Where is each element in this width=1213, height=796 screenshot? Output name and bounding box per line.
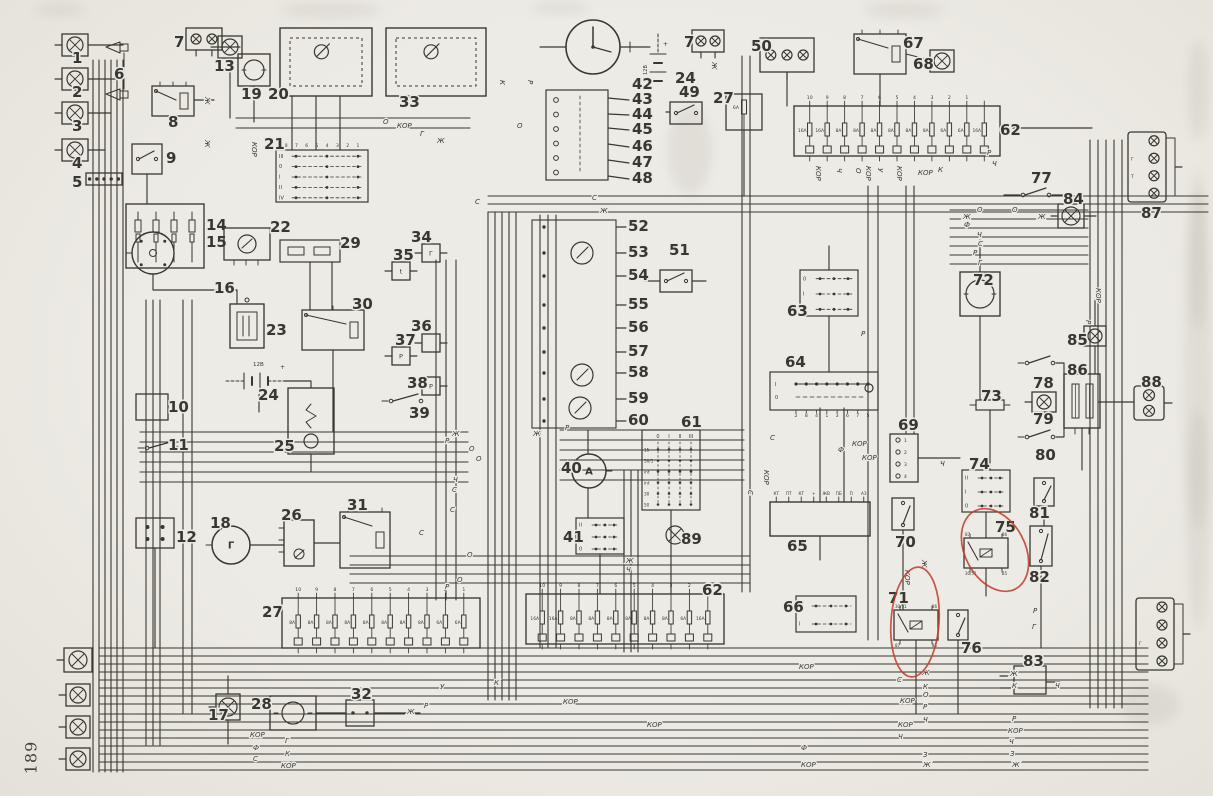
terminal-dot	[542, 303, 545, 306]
wire-segment	[898, 614, 908, 632]
component-number-3: 3	[72, 117, 82, 135]
wire-polyline	[106, 42, 120, 53]
component-outline	[288, 388, 334, 454]
dot	[690, 503, 693, 506]
fuse-pin: 7	[861, 95, 864, 101]
switch-position: IV	[279, 195, 284, 201]
component-number-85: 85	[1067, 331, 1088, 349]
dot	[604, 524, 607, 527]
wire-segment	[1025, 188, 1046, 195]
component-number-5: 5	[72, 173, 82, 191]
wire-segment	[242, 239, 252, 248]
component-number-52: 52	[628, 217, 649, 235]
dot	[657, 492, 660, 495]
wire-color-label: Ф	[838, 446, 844, 454]
fuse-pin: 9	[559, 583, 562, 589]
wire-segment	[577, 247, 588, 258]
component-number-88: 88	[1141, 373, 1162, 391]
dot	[668, 492, 671, 495]
terminal-dot	[542, 419, 545, 422]
scan-smudge	[1184, 170, 1212, 630]
wire-color-label: С	[897, 676, 902, 684]
component-outline	[370, 615, 374, 628]
fuse-rating: 8А	[363, 620, 369, 626]
fuse-rating: 6А	[436, 620, 442, 626]
fuse-pin: 10	[295, 587, 301, 593]
scan-smudge	[280, 2, 380, 18]
component-outline	[910, 146, 918, 153]
component-number-78: 78	[1033, 374, 1054, 392]
dot	[163, 263, 166, 266]
wire-color-label: Ч	[835, 168, 843, 173]
component-number-9: 9	[166, 149, 176, 167]
pin	[95, 177, 98, 180]
component-number-30: 30	[352, 295, 373, 313]
component-number-13: 13	[214, 57, 235, 75]
terminal-name: int	[644, 469, 650, 474]
scan-smudge	[530, 2, 590, 14]
component-outline	[532, 220, 616, 428]
wire-color-label: Ж	[625, 557, 634, 565]
component-outline	[860, 123, 864, 136]
dot	[613, 524, 616, 527]
wire-segment	[903, 506, 910, 524]
component-outline	[546, 90, 608, 180]
dot	[295, 165, 298, 168]
wire-color-label: С	[419, 529, 424, 537]
terminal-number: 4	[815, 413, 818, 419]
component-outline	[650, 611, 654, 624]
terminal-number: 6	[846, 413, 849, 419]
wire-segment	[306, 315, 346, 324]
wire-color-label: КОР	[900, 697, 915, 705]
dot	[657, 448, 660, 451]
component-circle	[901, 501, 904, 504]
wire-color-label: Ж	[203, 139, 211, 148]
wire-color-label: Р	[1033, 607, 1038, 615]
component-circle	[1025, 361, 1029, 365]
wire-color-label: КОР	[762, 470, 770, 485]
component-outline	[351, 615, 355, 628]
component-number-57: 57	[628, 342, 649, 360]
fuse-pin: 3	[426, 587, 429, 593]
wire-polyline	[608, 98, 629, 100]
wire-color-label: Ж	[203, 96, 211, 105]
component-circle	[154, 157, 157, 160]
diagram-text: +	[663, 41, 668, 48]
component-number-32: 32	[351, 685, 372, 703]
component-outline	[842, 123, 846, 136]
diagram-text: Г	[429, 250, 433, 258]
wire-color-label: Ч	[1055, 682, 1060, 690]
wire-color-label: Ч	[977, 231, 982, 239]
component-outline	[1034, 478, 1054, 506]
dot	[833, 308, 836, 311]
wire-color-label: Ж	[1011, 761, 1020, 769]
fuse-pin: 7	[596, 583, 599, 589]
fuse-rating: 8А	[888, 128, 894, 134]
component-outline	[280, 240, 340, 262]
wire-segment	[980, 549, 992, 557]
component-outline	[963, 146, 971, 153]
wire-color-label: С	[450, 506, 455, 514]
component-outline	[982, 123, 986, 136]
switch-position: I	[799, 622, 800, 628]
component-outline	[948, 610, 968, 640]
component-outline	[858, 146, 866, 153]
fuse-rating: 8А	[923, 128, 929, 134]
dot	[833, 293, 836, 296]
terminal-number: 4	[326, 143, 329, 149]
wire-color-label: Ч	[923, 716, 928, 724]
wire-color-label: О	[517, 122, 523, 130]
wire-color-label: КОР	[647, 721, 662, 729]
dot	[847, 293, 850, 296]
component-outline	[806, 146, 814, 153]
fuse-pin: 1	[965, 95, 968, 101]
wire-color-label: КОР	[397, 122, 412, 130]
component-circle	[1051, 435, 1055, 439]
component-outline	[667, 634, 675, 641]
wire-color-label: Р	[445, 437, 450, 445]
wire-color-label: У	[876, 168, 884, 173]
diagram-text: 2	[904, 450, 907, 456]
wire-color-label: Р	[526, 80, 534, 85]
dot	[690, 481, 693, 484]
dot	[357, 196, 360, 199]
terminal-name: 50/1	[644, 458, 654, 463]
component-number-25: 25	[274, 437, 295, 455]
component-number-48: 48	[632, 169, 653, 187]
diagram-text: Р	[399, 353, 403, 361]
terminal-number: 7	[856, 413, 859, 419]
component-number-89: 89	[681, 530, 702, 548]
relay-terminal: 86	[932, 604, 938, 609]
switch-position: III	[689, 434, 693, 440]
component-outline	[808, 123, 812, 136]
wire-color-label: К	[498, 80, 506, 86]
wire-color-label: Ж	[962, 213, 971, 221]
fuse-pin: 9	[826, 95, 829, 101]
fuse-pin: 3	[670, 583, 673, 589]
fuse-rating: 8А	[381, 620, 387, 626]
component-circle	[150, 250, 157, 257]
switch-position: I	[965, 490, 966, 496]
component-outline	[649, 634, 657, 641]
component-outline	[892, 46, 900, 62]
dot	[690, 448, 693, 451]
dot	[295, 176, 298, 179]
wire-color-label: Ж	[406, 708, 415, 716]
dot	[357, 155, 360, 158]
fuse-pin: 4	[913, 95, 916, 101]
dot	[830, 623, 833, 626]
wire-color-label: Р	[1084, 320, 1092, 325]
dot	[815, 605, 818, 608]
scan-smudge	[668, 105, 712, 195]
diagram-text: Р	[429, 383, 433, 391]
wire-color-label: К	[1012, 682, 1018, 690]
scan-smudge	[1188, 40, 1208, 140]
component-outline	[135, 220, 141, 232]
component-outline	[947, 123, 951, 136]
component-number-65: 65	[787, 537, 808, 555]
component-outline	[965, 123, 969, 136]
component-circle	[956, 613, 959, 616]
component-circle	[1025, 435, 1029, 439]
fuse-pin: 3	[930, 95, 933, 101]
wire-color-label: С	[452, 486, 457, 494]
diagram-text: +	[812, 491, 816, 496]
dot	[981, 505, 984, 508]
terminal-dot	[542, 397, 545, 400]
component-outline	[892, 498, 914, 530]
component-number-79: 79	[1033, 410, 1054, 428]
pin	[554, 156, 559, 161]
fuse-rating: 6А	[958, 128, 964, 134]
dot	[668, 503, 671, 506]
diagram-text: КТ	[773, 491, 779, 496]
wire-color-label: К	[923, 683, 929, 691]
component-outline	[558, 611, 562, 624]
dot	[613, 536, 616, 539]
wire-color-label: КОР	[898, 721, 913, 729]
component-outline	[557, 634, 565, 641]
wire-color-label: КОР	[563, 698, 578, 706]
component-number-75: 75	[995, 518, 1016, 536]
wire-color-label: Ф	[801, 744, 807, 752]
wire-color-label: К	[938, 166, 944, 174]
scan-smudge	[35, 4, 85, 16]
dot	[668, 448, 671, 451]
component-number-6: 6	[114, 65, 124, 83]
wire-color-label: Р	[861, 330, 866, 338]
dot	[990, 491, 993, 494]
wire-color-label: У	[440, 683, 445, 691]
terminal-number: 5	[867, 413, 870, 419]
component-outline	[276, 150, 368, 202]
component-number-4: 4	[72, 154, 82, 172]
wire-segment	[858, 39, 888, 48]
dot	[833, 277, 836, 280]
wire-polyline	[284, 381, 311, 388]
wire-color-label: С	[978, 240, 983, 248]
switch-position: II	[679, 434, 682, 440]
wire-color-label: КОР	[864, 166, 872, 181]
fuse-pin: 9	[315, 587, 318, 593]
terminal-dot	[542, 371, 545, 374]
component-number-51: 51	[669, 241, 690, 259]
pin	[896, 450, 900, 454]
wire-polyline	[1166, 138, 1175, 196]
component-number-39: 39	[409, 404, 430, 422]
component-outline	[685, 634, 693, 641]
relay-terminal: 87	[895, 643, 901, 648]
pin	[110, 177, 113, 180]
fuse-pin: 5	[389, 587, 392, 593]
fuse-rating: 8А	[418, 620, 424, 626]
component-outline	[893, 146, 901, 153]
fuse-rating: 6А	[940, 128, 946, 134]
terminal-name: 30	[644, 491, 650, 496]
component-outline	[823, 146, 831, 153]
wire-color-label: С	[592, 194, 597, 202]
wire-color-label: Ф	[253, 744, 259, 752]
diagram-text: АЗ	[861, 491, 867, 496]
component-outline	[687, 611, 691, 624]
wire-color-label: О	[854, 168, 862, 174]
component-number-87: 87	[1141, 204, 1162, 222]
component-outline	[1128, 132, 1166, 202]
terminal-number: 2	[795, 413, 798, 419]
diagram-text: Г	[228, 541, 235, 552]
fuse-pin: 10	[807, 95, 813, 101]
wire-color-label: Г	[978, 259, 983, 267]
component-number-33: 33	[399, 93, 420, 111]
dot	[830, 605, 833, 608]
component-number-66: 66	[783, 598, 804, 616]
pin	[554, 112, 559, 117]
wire-polyline	[1174, 604, 1183, 664]
dot	[326, 176, 329, 179]
component-outline	[422, 334, 440, 352]
switch-position: I	[775, 382, 776, 388]
wire-color-label: КОР	[862, 454, 877, 462]
pin	[88, 177, 91, 180]
component-number-84: 84	[1063, 190, 1084, 208]
component-number-38: 38	[407, 374, 428, 392]
component-outline	[350, 322, 358, 338]
component-outline	[706, 611, 710, 624]
relay-terminal: 85	[1002, 571, 1008, 576]
wire-color-label: О	[923, 691, 929, 699]
wire-color-label: С	[746, 490, 754, 495]
dot	[295, 155, 298, 158]
pin	[102, 177, 105, 180]
component-outline	[841, 146, 849, 153]
component-number-7: 7	[174, 33, 184, 51]
diagram-text: П	[850, 491, 853, 496]
component-outline	[180, 93, 188, 109]
wire-color-label: З	[1010, 750, 1015, 758]
diagram-text: Г	[1131, 156, 1134, 162]
component-outline	[423, 638, 431, 645]
diagram-text: 1	[904, 438, 907, 444]
component-circle	[684, 279, 687, 282]
fuse-pin: 5	[633, 583, 636, 589]
component-outline	[349, 638, 357, 645]
component-outline	[405, 638, 413, 645]
dot	[657, 459, 660, 462]
dot	[357, 165, 360, 168]
fuse-pin: 6	[370, 587, 373, 593]
component-number-31: 31	[347, 496, 368, 514]
component-outline	[153, 220, 159, 232]
switch-position: 0	[803, 276, 806, 282]
component-number-27: 27	[713, 89, 734, 107]
component-number-34: 34	[411, 228, 432, 246]
component-outline	[770, 502, 870, 536]
component-outline	[313, 638, 321, 645]
dot	[668, 459, 671, 462]
battery-voltage: 12В	[643, 65, 649, 75]
dot	[326, 165, 329, 168]
dot	[999, 505, 1002, 508]
dot	[604, 548, 607, 551]
component-circle	[304, 434, 318, 448]
switch-position: II	[279, 185, 282, 191]
wire-color-label: Ж	[599, 207, 608, 215]
fuse-pin: 8	[843, 95, 846, 101]
component-outline	[386, 638, 394, 645]
wire-color-label: КОР	[1094, 288, 1102, 303]
component-number-37: 37	[395, 331, 416, 349]
wire-color-label: Ч	[898, 733, 903, 741]
component-outline	[540, 611, 544, 624]
wire-segment	[393, 394, 418, 401]
dot	[819, 293, 822, 296]
component-outline	[462, 615, 466, 628]
component-number-63: 63	[787, 302, 808, 320]
wire-color-label: О	[469, 445, 475, 453]
terminal-number: 1	[356, 143, 359, 149]
component-outline	[1064, 374, 1100, 428]
component-number-83: 83	[1023, 652, 1044, 670]
terminal-dot	[542, 350, 545, 353]
wire-color-label: Ж	[922, 761, 931, 769]
component-number-40: 40	[561, 459, 582, 477]
diagram-text: Т	[1130, 174, 1134, 180]
component-number-58: 58	[628, 363, 649, 381]
wire-color-label: Ж	[710, 61, 718, 70]
wire-segment	[139, 151, 154, 159]
wire-color-label: КОР	[1008, 727, 1023, 735]
wire-color-label: Ч	[940, 460, 945, 468]
component-outline	[294, 638, 302, 645]
fuse-rating: 16А	[798, 128, 807, 134]
diagram-text: ЖВ	[823, 491, 831, 496]
component-number-16: 16	[214, 279, 235, 297]
wire-segment	[577, 369, 588, 380]
wire-color-label: Р	[424, 702, 429, 710]
wire-polyline	[608, 176, 629, 179]
wire-segment	[156, 91, 176, 100]
component-circle	[389, 399, 393, 403]
fuse-rating: 16А	[530, 616, 539, 622]
dot	[819, 308, 822, 311]
component-outline	[593, 634, 601, 641]
dot	[326, 186, 329, 189]
dot	[357, 186, 360, 189]
fuse-rating: 8А	[588, 616, 594, 622]
dot	[981, 477, 984, 480]
fuse-rating: 8А	[570, 616, 576, 622]
dot	[657, 503, 660, 506]
dot	[845, 605, 848, 608]
wire-color-label: КОР	[250, 731, 265, 739]
dot	[595, 536, 598, 539]
component-outline	[595, 611, 599, 624]
pin	[896, 462, 900, 466]
wire-segment	[910, 621, 922, 629]
terminal-number: 6	[305, 143, 308, 149]
wire-color-label: О	[383, 118, 389, 126]
wire-segment	[958, 618, 965, 634]
dot	[140, 263, 143, 266]
wire-color-label: О	[467, 551, 473, 559]
component-outline	[425, 615, 429, 628]
dot	[679, 459, 682, 462]
